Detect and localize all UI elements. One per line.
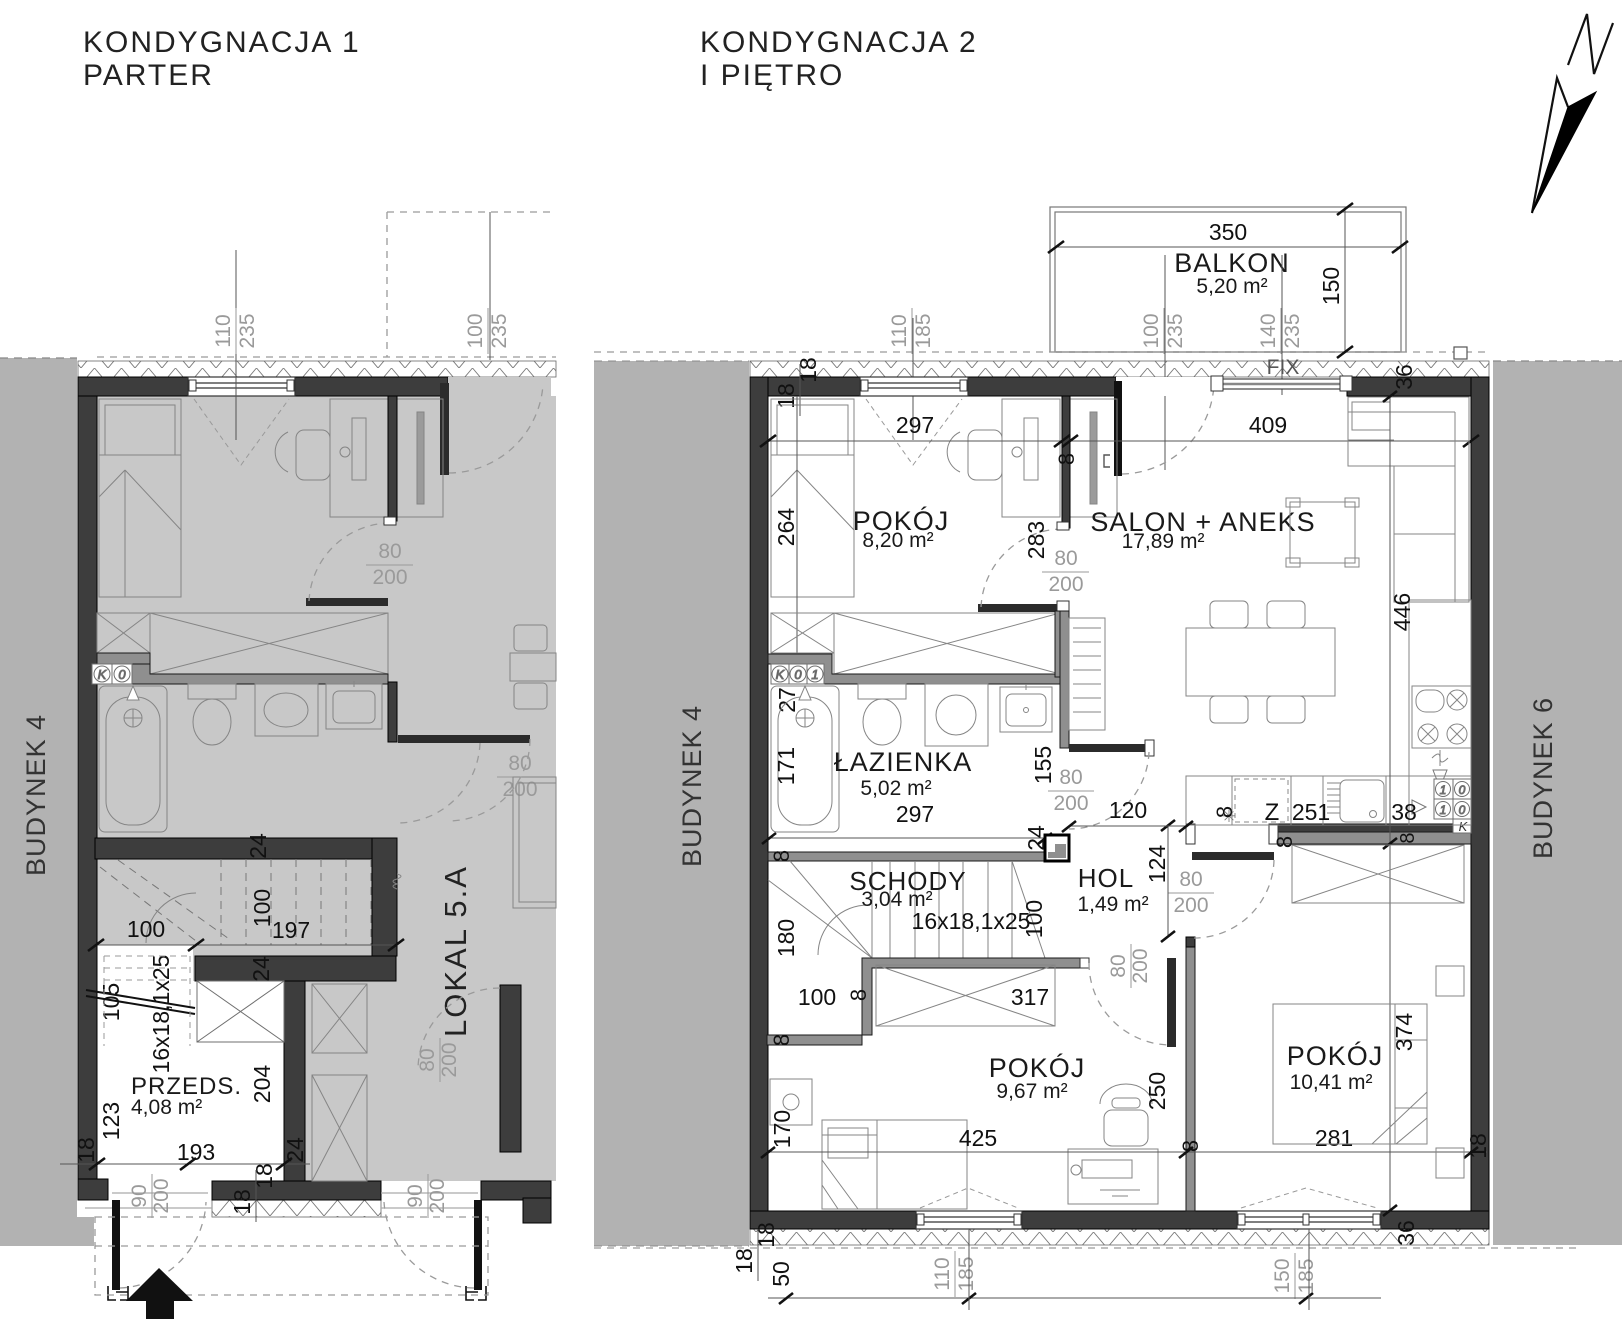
svg-text:317: 317 <box>1011 984 1049 1010</box>
svg-text:200: 200 <box>1053 792 1088 815</box>
svg-text:446: 446 <box>1389 593 1415 631</box>
svg-text:409: 409 <box>1249 412 1287 438</box>
svg-text:110: 110 <box>931 1257 954 1290</box>
svg-text:281: 281 <box>1315 1125 1353 1151</box>
svg-text:185: 185 <box>955 1256 978 1291</box>
svg-text:193: 193 <box>177 1139 215 1165</box>
svg-text:0: 0 <box>1459 803 1466 817</box>
svg-text:K: K <box>98 667 108 682</box>
svg-text:38: 38 <box>1391 799 1417 825</box>
svg-text:80: 80 <box>1107 954 1130 977</box>
svg-text:9,67 m²: 9,67 m² <box>996 1080 1067 1103</box>
svg-text:200: 200 <box>426 1178 449 1213</box>
svg-text:Z: Z <box>1265 799 1280 826</box>
svg-text:17,89 m²: 17,89 m² <box>1122 530 1205 553</box>
svg-text:204: 204 <box>249 1065 275 1104</box>
svg-text:90: 90 <box>128 1184 151 1207</box>
svg-text:18: 18 <box>73 1137 99 1163</box>
svg-text:0: 0 <box>1459 783 1466 797</box>
svg-text:1,49 m²: 1,49 m² <box>1077 893 1148 916</box>
svg-text:16x18,1x25: 16x18,1x25 <box>912 908 1031 934</box>
svg-text:120: 120 <box>1109 797 1147 823</box>
svg-text:425: 425 <box>959 1125 997 1151</box>
svg-text:150: 150 <box>1318 267 1344 305</box>
svg-text:251: 251 <box>1292 799 1330 825</box>
svg-text:8: 8 <box>1178 1140 1203 1152</box>
svg-text:27: 27 <box>774 687 800 713</box>
svg-text:8: 8 <box>1054 453 1079 465</box>
svg-text:BUDYNEK 4: BUDYNEK 4 <box>677 705 707 867</box>
svg-text:18: 18 <box>795 357 821 383</box>
svg-text:LOKAL 5.A: LOKAL 5.A <box>438 865 473 1037</box>
svg-text:8: 8 <box>846 989 871 1001</box>
svg-text:283: 283 <box>1023 521 1049 559</box>
svg-text:110: 110 <box>888 314 911 347</box>
svg-text:250: 250 <box>1144 1072 1170 1110</box>
svg-text:80: 80 <box>416 1048 439 1071</box>
svg-text:HOL: HOL <box>1078 863 1134 893</box>
svg-text:POKÓJ: POKÓJ <box>1287 1040 1384 1071</box>
svg-text:124: 124 <box>1144 845 1170 884</box>
svg-text:36: 36 <box>1391 364 1417 390</box>
svg-text:235: 235 <box>236 313 259 348</box>
svg-text:10,41 m²: 10,41 m² <box>1290 1071 1373 1094</box>
svg-text:8: 8 <box>1397 832 1419 843</box>
svg-text:K: K <box>1459 819 1469 834</box>
svg-text:80: 80 <box>378 540 401 563</box>
svg-text:BALKON: BALKON <box>1174 248 1290 278</box>
svg-text:1: 1 <box>1440 783 1447 797</box>
svg-text:90: 90 <box>404 1184 427 1207</box>
svg-text:200: 200 <box>372 566 407 589</box>
svg-text:24: 24 <box>245 833 271 859</box>
svg-text:150: 150 <box>1271 1258 1294 1293</box>
svg-text:200: 200 <box>502 778 537 801</box>
svg-text:18: 18 <box>731 1248 757 1274</box>
svg-text:197: 197 <box>272 917 310 943</box>
svg-text:200: 200 <box>150 1178 173 1213</box>
svg-text:1: 1 <box>1440 803 1447 817</box>
svg-text:36: 36 <box>1393 1220 1419 1246</box>
svg-text:100: 100 <box>127 916 165 942</box>
svg-text:POKÓJ: POKÓJ <box>989 1052 1086 1083</box>
svg-text:123: 123 <box>98 1102 124 1140</box>
svg-text:4,08 m²: 4,08 m² <box>131 1096 202 1119</box>
svg-text:BUDYNEK 6: BUDYNEK 6 <box>1528 697 1558 859</box>
svg-text:264: 264 <box>773 508 799 547</box>
svg-text:350: 350 <box>1209 219 1247 245</box>
svg-text:185: 185 <box>912 313 935 348</box>
svg-text:8,20 m²: 8,20 m² <box>862 529 933 552</box>
svg-text:80: 80 <box>1059 766 1082 789</box>
svg-text:FIX: FIX <box>1267 356 1300 379</box>
svg-text:297: 297 <box>896 412 934 438</box>
svg-text:5,20 m²: 5,20 m² <box>1196 275 1267 298</box>
svg-text:24: 24 <box>1023 825 1049 851</box>
svg-text:18: 18 <box>229 1189 255 1215</box>
svg-text:110: 110 <box>212 314 235 347</box>
svg-text:8: 8 <box>769 850 794 862</box>
svg-text:8: 8 <box>1272 836 1297 848</box>
svg-text:1: 1 <box>811 667 818 682</box>
svg-text:24: 24 <box>248 956 274 982</box>
svg-text:100: 100 <box>464 313 487 348</box>
svg-text:5,02 m²: 5,02 m² <box>860 777 931 800</box>
svg-text:BUDYNEK 4: BUDYNEK 4 <box>21 714 51 876</box>
svg-text:80: 80 <box>1054 547 1077 570</box>
svg-text:374: 374 <box>1391 1013 1417 1052</box>
svg-text:200: 200 <box>1129 948 1152 983</box>
svg-text:235: 235 <box>1164 313 1187 348</box>
svg-text:0: 0 <box>118 667 126 682</box>
svg-text:140: 140 <box>1257 313 1280 348</box>
svg-text:200: 200 <box>1048 573 1083 596</box>
svg-text:80: 80 <box>1179 868 1202 891</box>
svg-text:155: 155 <box>1030 746 1056 784</box>
svg-text:0: 0 <box>794 667 802 682</box>
svg-text:100: 100 <box>798 984 836 1010</box>
svg-text:16x18,1x25: 16x18,1x25 <box>148 955 174 1074</box>
svg-text:8: 8 <box>769 1034 794 1046</box>
svg-text:PARTER: PARTER <box>83 59 214 92</box>
svg-text:185: 185 <box>1295 1258 1318 1293</box>
svg-text:171: 171 <box>773 747 799 785</box>
svg-text:I PIĘTRO: I PIĘTRO <box>700 59 844 92</box>
svg-text:18: 18 <box>753 1222 779 1248</box>
svg-text:105: 105 <box>98 983 124 1021</box>
svg-text:180: 180 <box>773 919 799 957</box>
svg-text:100: 100 <box>1021 900 1047 938</box>
svg-text:K: K <box>776 667 786 682</box>
svg-text:235: 235 <box>488 313 511 348</box>
svg-text:18: 18 <box>251 1163 277 1189</box>
svg-text:235: 235 <box>1281 313 1304 348</box>
svg-text:24: 24 <box>282 1137 308 1163</box>
svg-text:KONDYGNACJA 1: KONDYGNACJA 1 <box>83 26 361 59</box>
svg-text:KONDYGNACJA 2: KONDYGNACJA 2 <box>700 26 978 59</box>
svg-text:200: 200 <box>1173 894 1208 917</box>
svg-text:100: 100 <box>1140 313 1163 348</box>
svg-text:8: 8 <box>1212 806 1237 818</box>
svg-text:50: 50 <box>768 1261 794 1287</box>
svg-text:200: 200 <box>438 1042 461 1077</box>
svg-text:170: 170 <box>769 1110 795 1148</box>
svg-text:297: 297 <box>896 801 934 827</box>
svg-text:18: 18 <box>1465 1133 1491 1159</box>
svg-text:ŁAZIENKA: ŁAZIENKA <box>834 747 973 777</box>
